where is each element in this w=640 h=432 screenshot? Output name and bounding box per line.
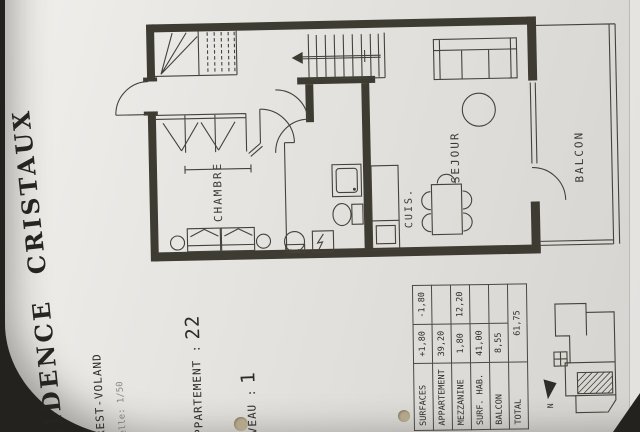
apartment-label: APPARTEMENT : (190, 344, 206, 432)
scanned-floor-plan-photo: N CHAMBRE SEJOUR BALCON CUIS. RESIDENCE … (0, 0, 640, 432)
table-row: APPARTEMENT 39,20 (431, 285, 452, 430)
header-surfaces: SURFACES (414, 363, 434, 430)
hall-doors (247, 89, 308, 156)
shower (332, 164, 362, 197)
header-col-minus: -1,80 (412, 285, 432, 324)
stair-direction-arrow-icon (292, 52, 303, 64)
total-value: 61,75 (507, 284, 527, 362)
chair (463, 191, 472, 209)
north-arrow-icon (543, 379, 556, 399)
closet (156, 114, 247, 154)
toilet (333, 203, 363, 226)
surfaces-table-block: SURFACES +1,80 -1,80 APPARTEMENT 39,20 M… (412, 283, 529, 431)
table-total-row: TOTAL 61,75 (507, 284, 528, 429)
chair (422, 192, 431, 210)
winder-staircase (154, 31, 237, 77)
entry-door (115, 82, 149, 116)
kitchen-label: CUIS. (403, 188, 415, 228)
table-row: MEZZANINE 1,80 12,20 (450, 285, 471, 430)
header-col-plus: +1,80 (413, 324, 433, 363)
kitchen (371, 165, 400, 250)
row-value (488, 284, 508, 323)
row-value (469, 284, 489, 323)
walls (142, 16, 541, 261)
surfaces-table: SURFACES +1,80 -1,80 APPARTEMENT 39,20 M… (412, 283, 529, 431)
row-label: MEZZANINE (452, 363, 472, 430)
window (530, 82, 537, 163)
bed (187, 228, 220, 252)
bathroom (283, 164, 364, 253)
chair (463, 213, 472, 231)
apartment-line: APPARTEMENT :22 (181, 314, 207, 432)
row-label: SURF. HAB. (471, 362, 491, 429)
living-room-label: SEJOUR (448, 131, 462, 183)
chair (422, 214, 431, 232)
lightning-bolt-icon (317, 234, 323, 250)
dining-table (421, 174, 472, 235)
key-plan: N (542, 303, 616, 413)
row-value: 12,20 (450, 285, 470, 324)
apartment-number: 22 (181, 314, 204, 340)
mezzanine-staircase (291, 33, 385, 80)
row-value: 8,55 (489, 323, 509, 362)
total-label: TOTAL (509, 362, 529, 429)
living-room (418, 38, 520, 235)
north-label: N (546, 403, 555, 408)
balcony-label: BALCON (572, 131, 586, 183)
bedroom (168, 143, 286, 253)
row-label: BALCON (490, 362, 510, 429)
row-value: 39,20 (432, 324, 452, 363)
nightstand (170, 236, 184, 250)
page-edge (629, 0, 640, 432)
balcony-door (532, 167, 566, 201)
bed (221, 227, 254, 251)
kitchen-sink (376, 225, 395, 243)
bedroom-label: CHAMBRE (211, 162, 225, 223)
row-value: 1,80 (451, 324, 471, 363)
coffee-table (462, 93, 496, 127)
row-value: 41,00 (470, 323, 490, 362)
hole-punch (234, 417, 248, 431)
hole-punch (398, 410, 410, 422)
table-header-row: SURFACES +1,80 -1,80 (412, 285, 433, 430)
table-row: BALCON 8,55 (488, 284, 509, 429)
row-label: APPARTEMENT (433, 363, 453, 430)
row-value (431, 285, 451, 324)
nightstand (256, 234, 270, 248)
level-number: 1 (237, 371, 259, 384)
table-row: SURF. HAB. 41,00 (469, 284, 490, 429)
sofa (433, 38, 517, 80)
